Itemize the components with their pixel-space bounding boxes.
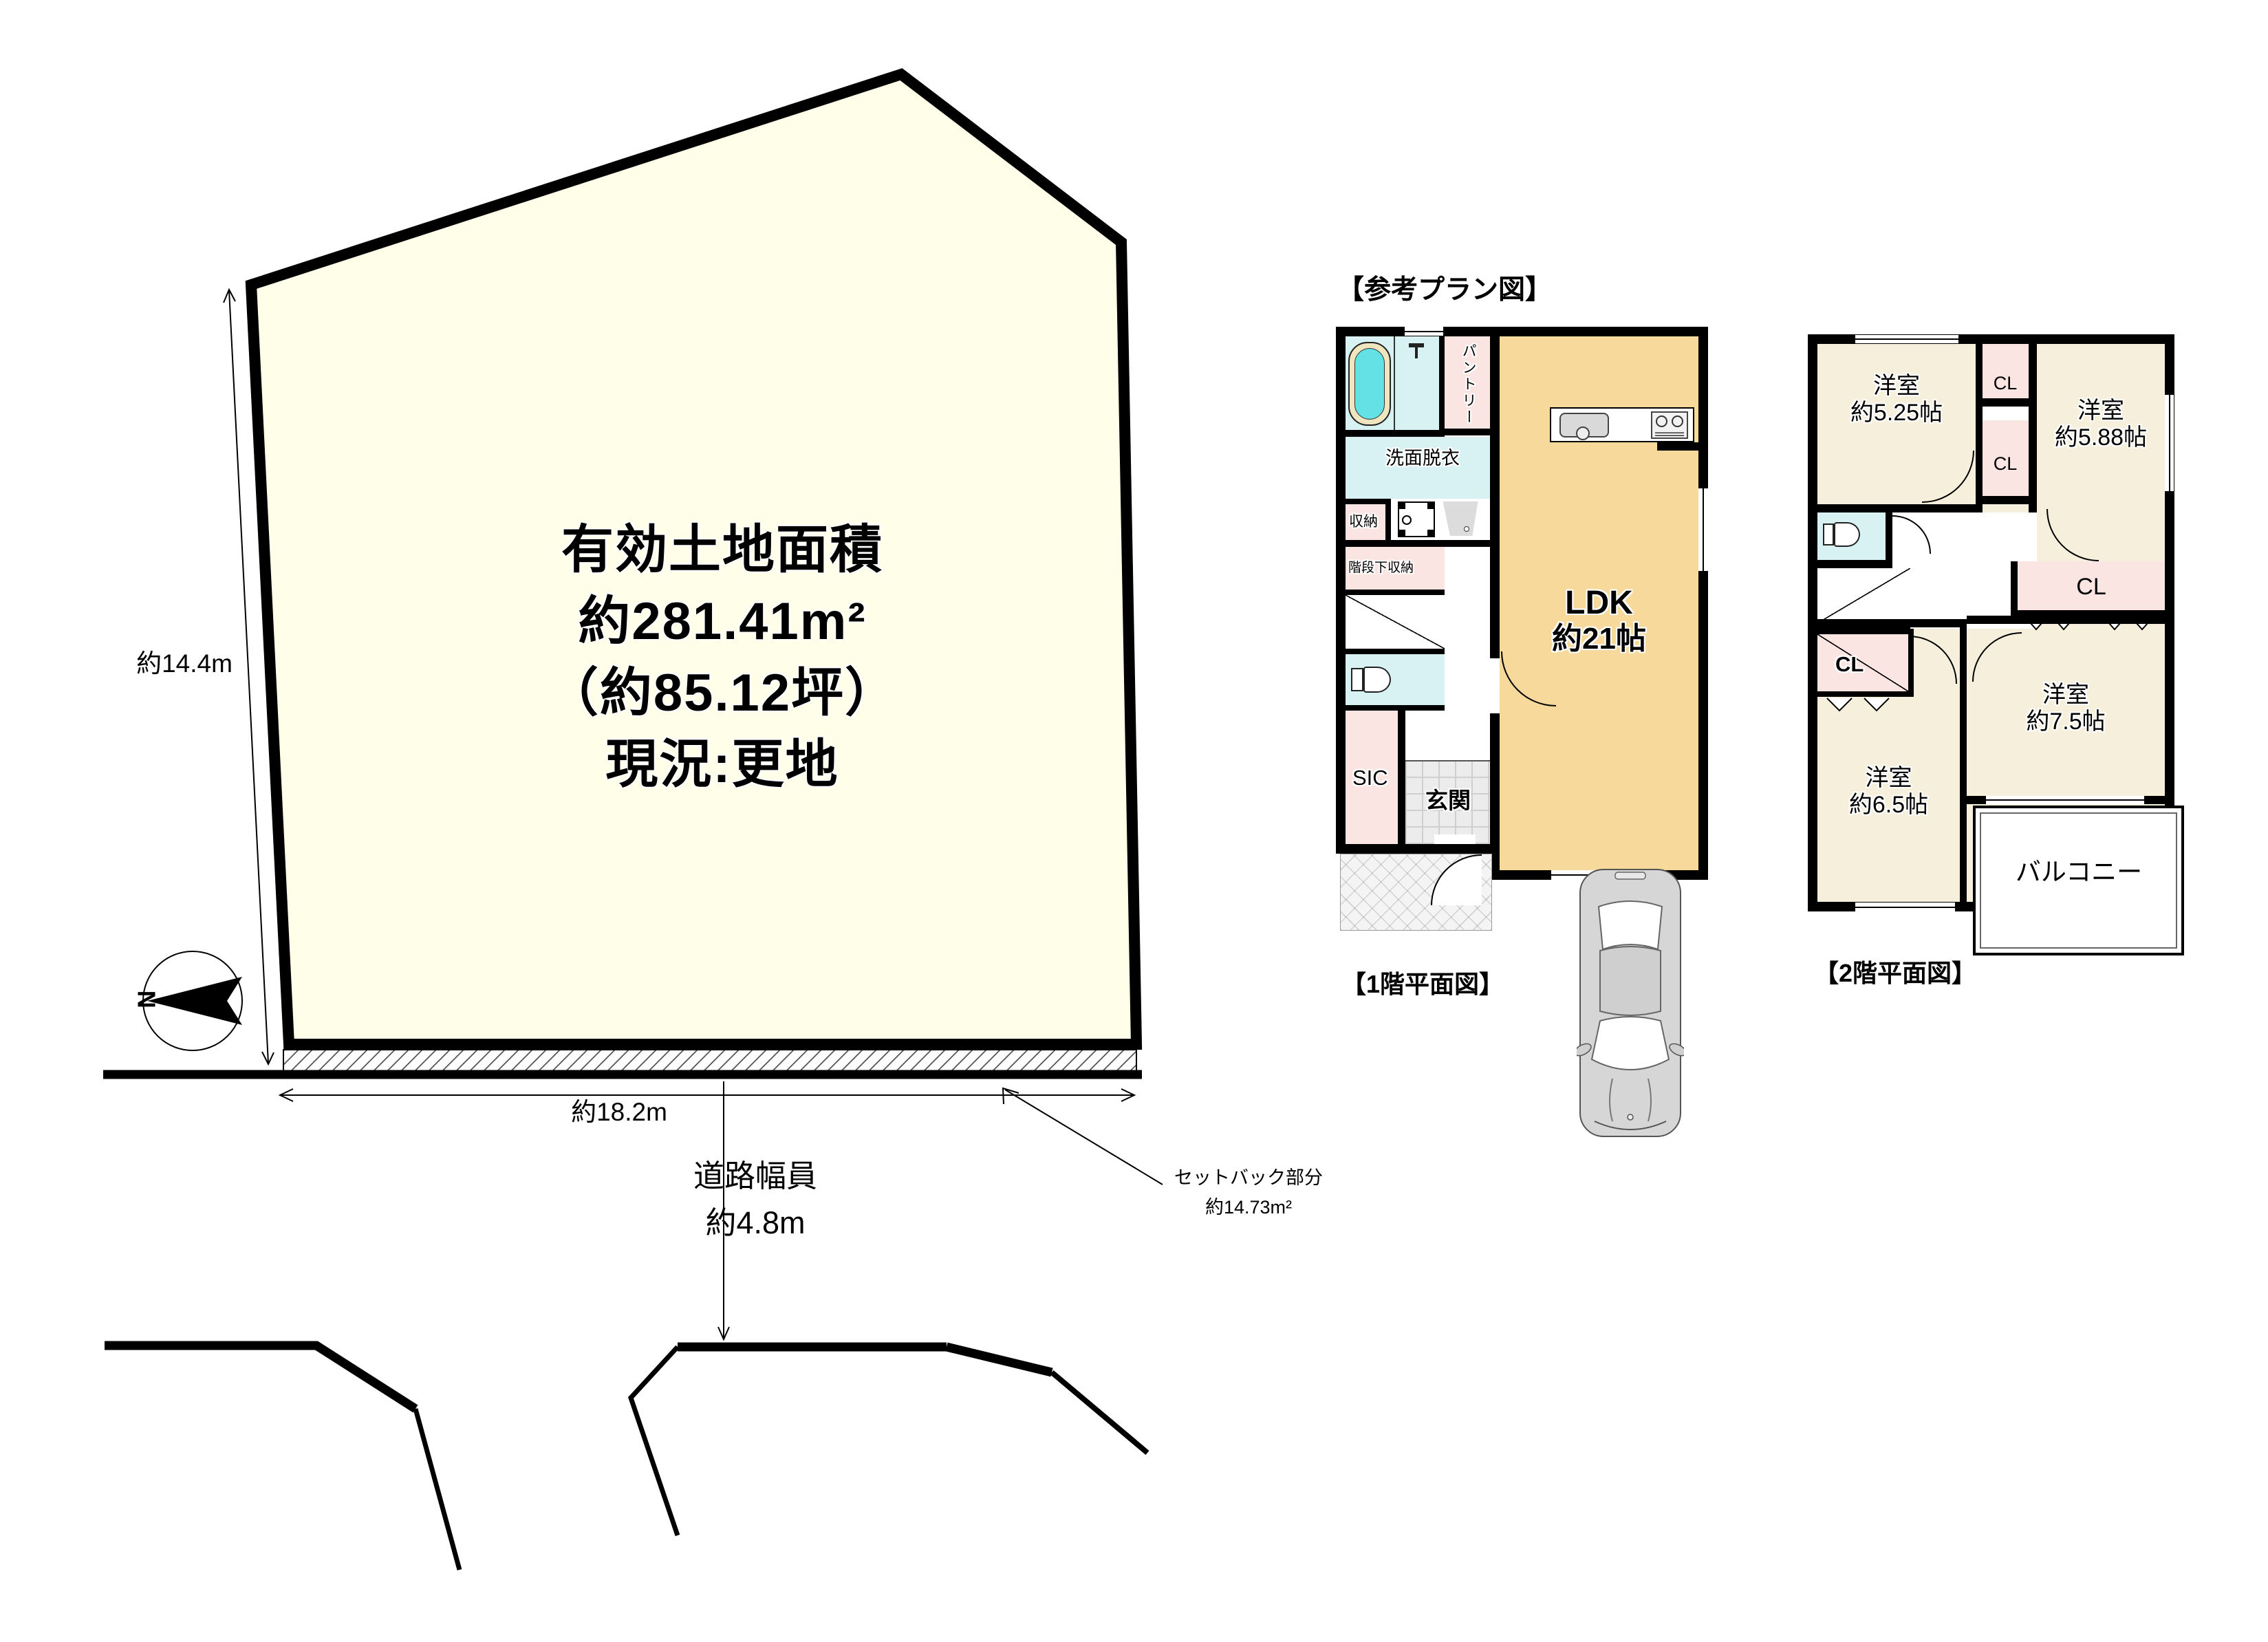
shower-fixture-icon [1415, 347, 1418, 358]
land-area-text: 有効土地面積 約281.41m² （約85.12坪） 現況:更地 [546, 515, 898, 801]
floor-plan-1f: LDK 約21帖 パントリー [1336, 327, 1708, 880]
road-edges [105, 1346, 1147, 1570]
plan-header: 【参考プラン図】 [1337, 275, 1552, 306]
room-65-window [1855, 903, 1955, 911]
bathtub [1348, 342, 1391, 426]
room-65: 洋室 約6.5帖 [1817, 619, 1967, 902]
wash-basin [1440, 501, 1480, 536]
ldk-label-line1: LDK [1500, 584, 1698, 622]
room-washroom-label: 洗面脱衣 [1385, 448, 1460, 469]
room-75-door-arc [1972, 632, 2022, 682]
closet-cl-top: CL [1983, 344, 2029, 407]
wall-stairs-top [1346, 590, 1445, 595]
setback-hatch-strip [283, 1050, 1136, 1072]
land-plot-diagram [0, 0, 1238, 1642]
closet-cl-mid: CL [1983, 420, 2029, 504]
wall-washroom-bottom [1346, 540, 1490, 547]
road-width-label-1: 道路幅員 [693, 1158, 817, 1194]
balcony-label: バルコニー [2016, 858, 2142, 887]
ldk-side-window [1698, 488, 1708, 571]
wall-sic-right [1398, 711, 1405, 844]
floor-plan-2f: 洋室 約5.25帖 CL CL 洋室 約5.88帖 [1808, 334, 2174, 911]
room-588-line2: 約5.88帖 [2037, 424, 2165, 451]
balcony-window [1986, 796, 2144, 804]
room-75-label: 洋室 約7.5帖 [1967, 682, 2165, 735]
ldk-door-arc [1501, 651, 1556, 706]
room-sic: SIC [1346, 711, 1398, 844]
room-525-line1: 洋室 [1817, 373, 1976, 400]
balcony: バルコニー [1973, 806, 2184, 955]
washer-door-icon [1402, 515, 1412, 525]
wall-cl-right-left [2011, 561, 2018, 616]
room-75-line1: 洋室 [1967, 682, 2165, 709]
wall-closet-right [2029, 344, 2037, 512]
room-toilet-2f [1817, 512, 1892, 568]
room-588-line1: 洋室 [2037, 398, 2165, 424]
room-ldk-label: LDK 約21帖 [1500, 584, 1698, 657]
room-sic-label: SIC [1352, 766, 1388, 790]
room-65-line1: 洋室 [1817, 765, 1960, 792]
washing-machine [1398, 501, 1435, 537]
wall-stairs-bottom [1346, 649, 1445, 654]
stove-burner-icon [1656, 415, 1667, 427]
room-storage: 収納 [1346, 499, 1391, 540]
room-entrance: 玄関 [1405, 760, 1490, 844]
setback-label-1: セットバック部分 [1174, 1167, 1323, 1189]
kitchen-counter [1550, 407, 1694, 442]
north-label: N [132, 991, 160, 1008]
land-area-line4: 現況:更地 [546, 729, 898, 801]
toilet-tank-icon [1823, 523, 1834, 545]
room-588-label: 洋室 約5.88帖 [2037, 398, 2165, 451]
room-storage-label: 収納 [1349, 514, 1378, 530]
room-washroom: 洗面脱衣 [1346, 437, 1490, 499]
site-and-floor-plan-sheet: 有効土地面積 約281.41m² （約85.12坪） 現況:更地 約14.4m … [0, 0, 2268, 1642]
closet-cl-right-label: CL [2076, 574, 2106, 601]
hall-ldk-opening [1490, 658, 1500, 713]
entrance-porch [1340, 854, 1492, 931]
room-65-door-arc [1909, 636, 1957, 684]
bath-partition [1394, 336, 1395, 430]
room-525-label: 洋室 約5.25帖 [1817, 373, 1976, 426]
f1-left-wing: パントリー 洗面脱衣 収納 階段下収納 [1336, 327, 1500, 854]
stove-burner-icon [1672, 415, 1683, 427]
room-65-line2: 約6.5帖 [1817, 792, 1960, 819]
bath-window [1405, 327, 1443, 336]
bathtub-water [1354, 348, 1385, 420]
setback-label-2: 約14.73m² [1205, 1197, 1292, 1218]
room-525-line2: 約5.25帖 [1817, 400, 1976, 426]
dim-left-label: 約14.4m [136, 649, 233, 679]
closet-cl-top-label: CL [1994, 373, 2018, 394]
kitchen-stove [1651, 411, 1688, 439]
f1-caption: 【1階平面図】 [1341, 970, 1504, 998]
entry-door-arc [1431, 854, 1482, 905]
road-width-label-2: 約4.8m [705, 1205, 805, 1241]
room-entrance-label: 玄関 [1425, 788, 1471, 814]
land-area-line2: 約281.41m² [546, 586, 898, 658]
room-ldk: LDK 約21帖 [1490, 327, 1708, 880]
room-75: 洋室 約7.5帖 [1967, 616, 2165, 804]
closet-gap [1983, 407, 2029, 420]
toilet-bowl-icon [1834, 522, 1860, 547]
land-area-line1: 有効土地面積 [546, 515, 898, 586]
room-under-stairs-label: 階段下収納 [1348, 561, 1414, 576]
stove-grate-icon [1655, 431, 1684, 436]
wall-toilet-bottom [1346, 705, 1445, 711]
basin-drain-icon [1464, 526, 1469, 532]
room-pantry: パントリー [1445, 336, 1490, 435]
land-area-line3: （約85.12坪） [546, 658, 898, 729]
room-525: 洋室 約5.25帖 [1817, 344, 1983, 512]
room-525-door-arc [1922, 451, 1974, 503]
entry-door-opening [1434, 834, 1476, 844]
car-top-view [1577, 865, 1684, 1141]
room-pantry-label: パントリー [1460, 343, 1476, 426]
room-588-window [2165, 395, 2174, 491]
sink-faucet-icon [1576, 426, 1590, 440]
f2-caption: 【2階平面図】 [1814, 959, 1976, 987]
closet-cl-mid-label: CL [1994, 453, 2018, 475]
dim-bottom-label: 約18.2m [571, 1098, 667, 1127]
room-525-window [1855, 335, 1958, 343]
room-under-stairs: 階段下収納 [1346, 547, 1445, 590]
toilet-bowl-icon [1363, 667, 1391, 693]
room-toilet-1f [1346, 654, 1445, 705]
setback-leader-line [1003, 1088, 1163, 1185]
wall-under-counter [1657, 442, 1698, 451]
room-bathroom [1346, 336, 1445, 437]
toilet-tank-icon [1351, 668, 1363, 691]
stairs-1f [1346, 595, 1445, 649]
room-75-line2: 約7.5帖 [1967, 709, 2165, 735]
closet-cl-right: CL [2018, 561, 2165, 616]
room-65-label: 洋室 約6.5帖 [1817, 765, 1960, 819]
